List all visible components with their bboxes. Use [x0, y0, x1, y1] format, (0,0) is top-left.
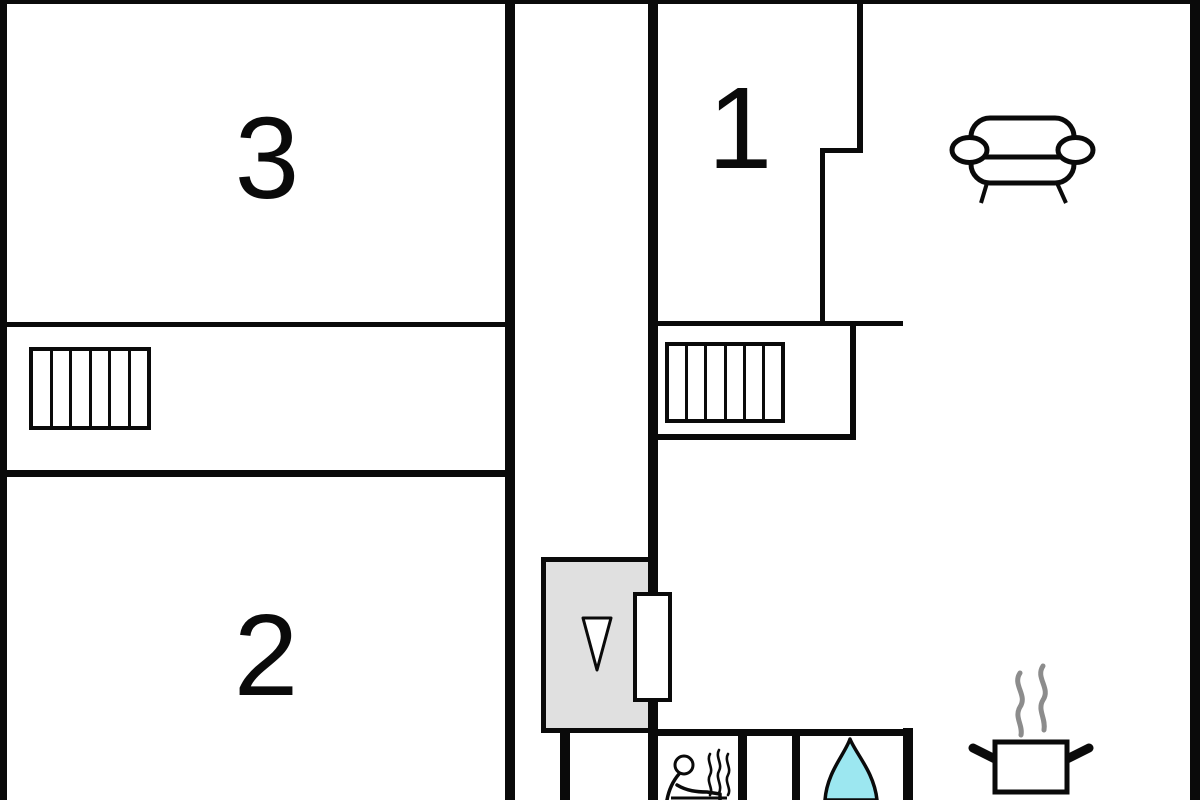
flame-cell — [800, 736, 903, 800]
wall-outer-right — [1190, 0, 1200, 800]
steam-icon — [709, 750, 729, 795]
wall-bottomrow-right — [903, 728, 913, 800]
wall-bottom-left-vertical — [560, 733, 570, 800]
sofa-icon — [943, 106, 1103, 206]
floor-plan: 3 1 2 — [0, 0, 1200, 800]
cooking-pot-icon — [960, 655, 1100, 800]
wall-room1-step — [820, 148, 863, 153]
wall-room1-right-lower — [820, 148, 825, 326]
sauna-person-icon — [657, 736, 738, 800]
stairs-upper-left-icon — [29, 347, 151, 430]
flame-icon — [800, 736, 903, 800]
wall-bottom-divider-1 — [738, 736, 747, 800]
stairs-upper-right-icon — [665, 342, 785, 423]
wall-corridor-right-upper — [648, 0, 658, 592]
wall-room1-right-upper — [857, 0, 863, 152]
sauna-cell — [657, 736, 738, 800]
wall-stairs-right-side — [850, 321, 856, 440]
wall-corridor-left — [505, 0, 515, 800]
room-label-2: 2 — [234, 597, 299, 713]
steam-icon — [1018, 666, 1046, 735]
wall-room3-bottom — [7, 322, 505, 327]
wall-below-room1 — [658, 321, 903, 326]
room-label-3: 3 — [235, 100, 300, 216]
wall-room2-top — [7, 470, 505, 477]
wall-top-border — [0, 0, 1200, 4]
wall-bottomrow-top — [653, 729, 913, 736]
door-icon — [633, 592, 672, 702]
wall-stairs-right-bottom — [658, 434, 856, 440]
elevator-down-arrow-icon — [579, 615, 615, 675]
wall-outer-left — [0, 0, 7, 800]
wall-bottom-divider-2 — [792, 736, 800, 800]
room-label-1: 1 — [708, 70, 773, 186]
